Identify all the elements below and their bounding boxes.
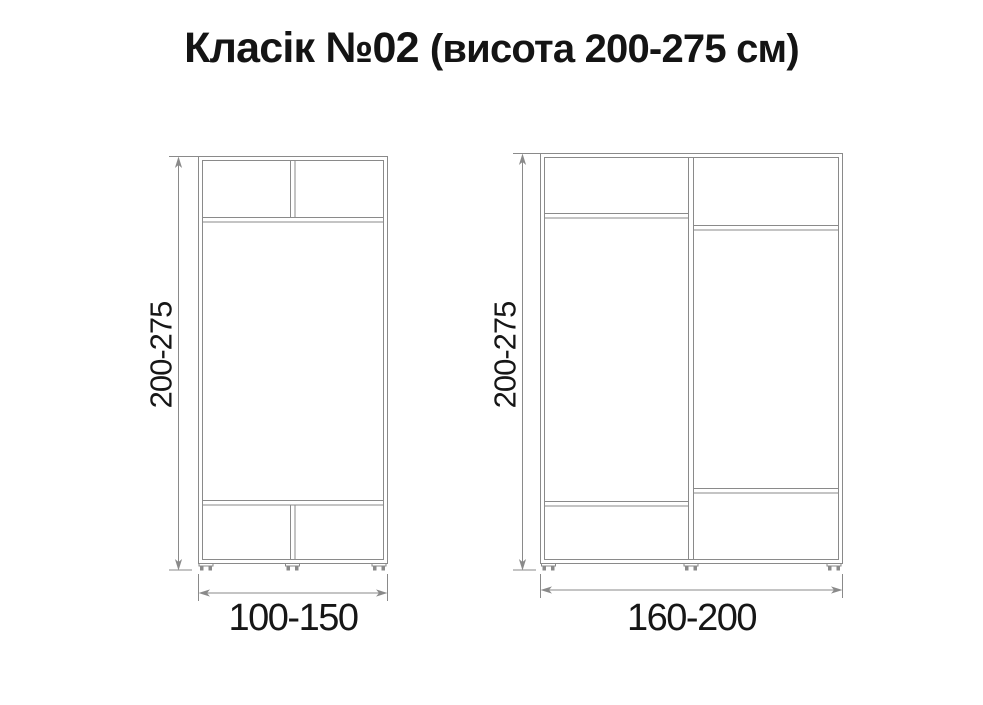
right-wardrobe-foot-center: [684, 564, 698, 571]
page-title: Класік №02 (висота 200-275 см): [0, 24, 983, 73]
left-wardrobe-bottom-divider: [291, 505, 296, 560]
left-wardrobe-top-divider: [291, 161, 296, 218]
right-wardrobe-right-bottom-shelf: [694, 489, 839, 494]
right-wardrobe-width-dimension: 160-200: [541, 574, 843, 639]
right-wardrobe-width-label: 160-200: [627, 597, 756, 639]
left-wardrobe-foot-center: [286, 564, 300, 571]
left-wardrobe-width-dimension: 100-150: [199, 574, 388, 639]
wardrobe-diagram: 200-275 100-150: [0, 0, 983, 700]
page-title-main: Класік №02: [184, 24, 419, 72]
left-wardrobe-top-shelf: [203, 218, 384, 223]
right-wardrobe-right-top-shelf: [694, 226, 839, 231]
right-wardrobe-left-top-shelf: [545, 214, 689, 219]
page-title-subtitle: (висота 200-275 см): [430, 27, 799, 71]
right-wardrobe-left-bottom-shelf: [545, 502, 689, 507]
left-wardrobe-height-dimension: 200-275: [144, 157, 199, 571]
left-wardrobe-width-label: 100-150: [229, 597, 358, 639]
left-wardrobe-height-label: 200-275: [144, 302, 179, 409]
left-wardrobe-bottom-shelf: [203, 501, 384, 506]
right-wardrobe-drawing: [541, 154, 843, 571]
right-wardrobe-height-label: 200-275: [488, 302, 523, 409]
right-wardrobe-center-divider: [689, 158, 694, 560]
right-wardrobe-foot-right: [827, 564, 841, 571]
right-wardrobe-foot-left: [542, 564, 556, 571]
left-wardrobe-foot-left: [199, 564, 213, 571]
diagram-page: Класік №02 (висота 200-275 см): [0, 0, 983, 700]
left-wardrobe-foot-right: [372, 564, 386, 571]
left-wardrobe-drawing: [199, 157, 388, 571]
right-wardrobe-height-dimension: 200-275: [488, 154, 541, 571]
